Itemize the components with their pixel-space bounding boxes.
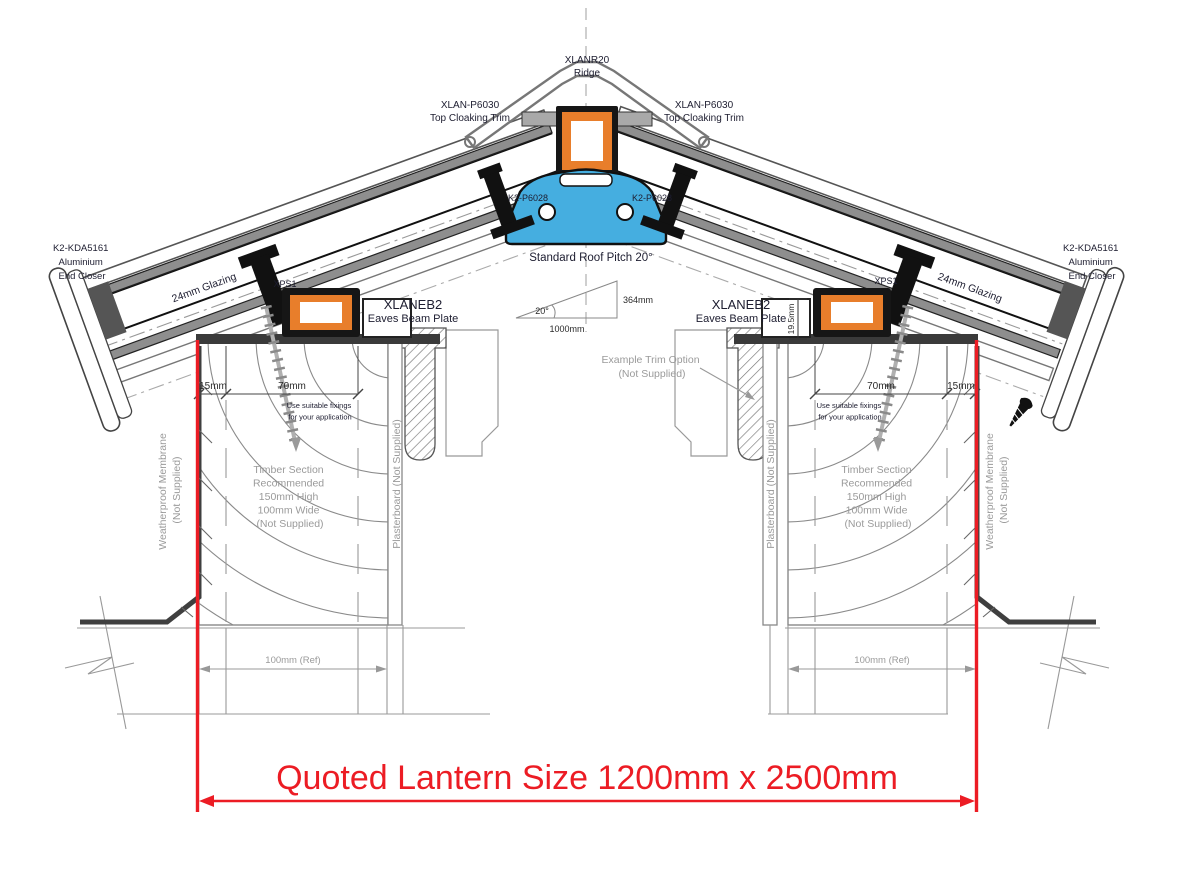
ridge-bolt-hole-left bbox=[539, 204, 555, 220]
dim-15mm-right: 15mm bbox=[947, 381, 975, 392]
cloaking-name-left: Top Cloaking Trim bbox=[430, 113, 510, 124]
wall-ref-dim-right: 100mm (Ref) bbox=[788, 655, 976, 673]
end-closer-label-left: K2-KDA5161 Aluminium End Closer bbox=[53, 243, 111, 282]
pitch-rise: 364mm bbox=[623, 295, 653, 305]
xps1-label-right: XPS1 bbox=[874, 276, 897, 286]
svg-text:19.5mm: 19.5mm bbox=[786, 304, 796, 335]
wall-ref-dim-left: 100mm (Ref) bbox=[199, 655, 387, 673]
ridge-name: Ridge bbox=[574, 68, 601, 79]
membrane-label-left: Weatherproof Membrane (Not Supplied) bbox=[157, 430, 183, 549]
svg-text:100mm (Ref): 100mm (Ref) bbox=[265, 655, 320, 666]
eaves-name-right: Eaves Beam Plate bbox=[696, 313, 787, 325]
roof-lantern-section-drawing: 24mm Glazing 24mm Glazing bbox=[0, 0, 1184, 872]
ridge-code: XLANR20 bbox=[565, 55, 610, 66]
eaves-code-right: XLANEB2 bbox=[712, 297, 771, 312]
ridge-bolt-label-right: K2-P6028 bbox=[632, 193, 672, 203]
drawing-canvas: 24mm Glazing 24mm Glazing bbox=[0, 0, 1184, 872]
eaves-name-left: Eaves Beam Plate bbox=[368, 313, 459, 325]
pitch-triangle: 20° 364mm 1000mm bbox=[516, 281, 653, 334]
dim-70mm-right: 70mm bbox=[867, 381, 895, 392]
plasterboard-label-left: Plasterboard (Not Supplied) bbox=[391, 419, 403, 549]
timber-note-right: Timber Section Recommended 150mm High 10… bbox=[841, 464, 915, 530]
xps1-label-left: XPS1 bbox=[273, 279, 296, 289]
ridge-bolt-hole-right bbox=[617, 204, 633, 220]
cloaking-name-right: Top Cloaking Trim bbox=[664, 113, 744, 124]
cloaking-code-right: XLAN-P6030 bbox=[675, 100, 734, 111]
svg-text:100mm (Ref): 100mm (Ref) bbox=[854, 655, 909, 666]
dim-15mm-left: 15mm bbox=[199, 381, 227, 392]
membrane-label-right: Weatherproof Membrane (Not Supplied) bbox=[984, 430, 1010, 549]
step-block-right bbox=[675, 330, 727, 456]
ridge-bolt-label-left: K2-P6028 bbox=[508, 193, 548, 203]
roof-pitch-note: Standard Roof Pitch 20° bbox=[529, 252, 653, 264]
dim-70mm-left: 70mm bbox=[278, 381, 306, 392]
pitch-angle: 20° bbox=[535, 306, 549, 316]
pitch-run: 1000mm bbox=[549, 324, 584, 334]
ridge-assembly bbox=[465, 62, 709, 244]
quoted-size-text: Quoted Lantern Size 1200mm x 2500mm bbox=[276, 759, 898, 797]
end-closer-label-right: K2-KDA5161 Aluminium End Closer bbox=[1063, 243, 1121, 282]
step-block-left bbox=[446, 330, 498, 456]
cloaking-code-left: XLAN-P6030 bbox=[441, 100, 500, 111]
screw-icon bbox=[1005, 394, 1036, 429]
plasterboard-label-right: Plasterboard (Not Supplied) bbox=[765, 419, 777, 549]
timber-note-left: Timber Section Recommended 150mm High 10… bbox=[253, 464, 327, 530]
eaves-code-left: XLANEB2 bbox=[384, 297, 443, 312]
